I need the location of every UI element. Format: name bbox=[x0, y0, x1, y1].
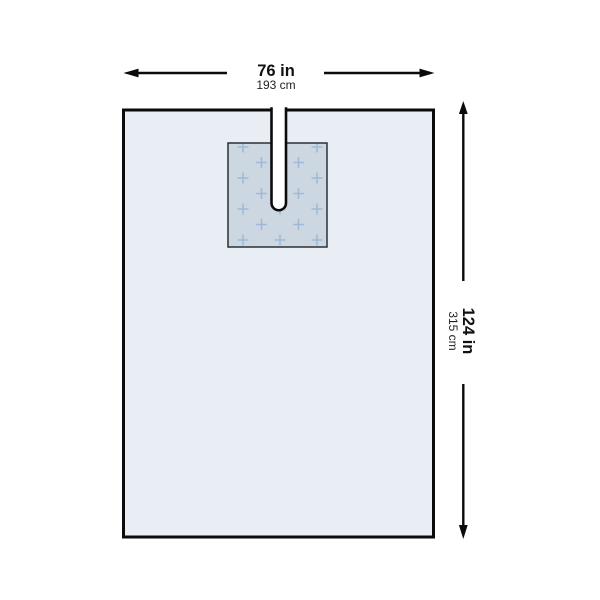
arrow-down-icon bbox=[459, 525, 468, 539]
arrow-left-icon bbox=[124, 69, 139, 78]
width-dimension: 76 in 193 cm bbox=[124, 62, 435, 92]
width-label-cm: 193 cm bbox=[256, 78, 295, 92]
arrow-up-icon bbox=[459, 101, 468, 114]
fenestration-slot bbox=[272, 107, 287, 210]
arrow-right-icon bbox=[420, 69, 435, 78]
height-label-cm: 315 cm bbox=[446, 311, 460, 350]
height-label-inches: 124 in bbox=[459, 308, 477, 355]
height-dimension: 124 in 315 cm bbox=[446, 101, 477, 539]
diagram-canvas: 76 in 193 cm 124 in 315 cm bbox=[0, 0, 600, 600]
drape-dimension-diagram: 76 in 193 cm 124 in 315 cm bbox=[0, 0, 600, 600]
height-label-group: 124 in 315 cm bbox=[446, 308, 477, 355]
